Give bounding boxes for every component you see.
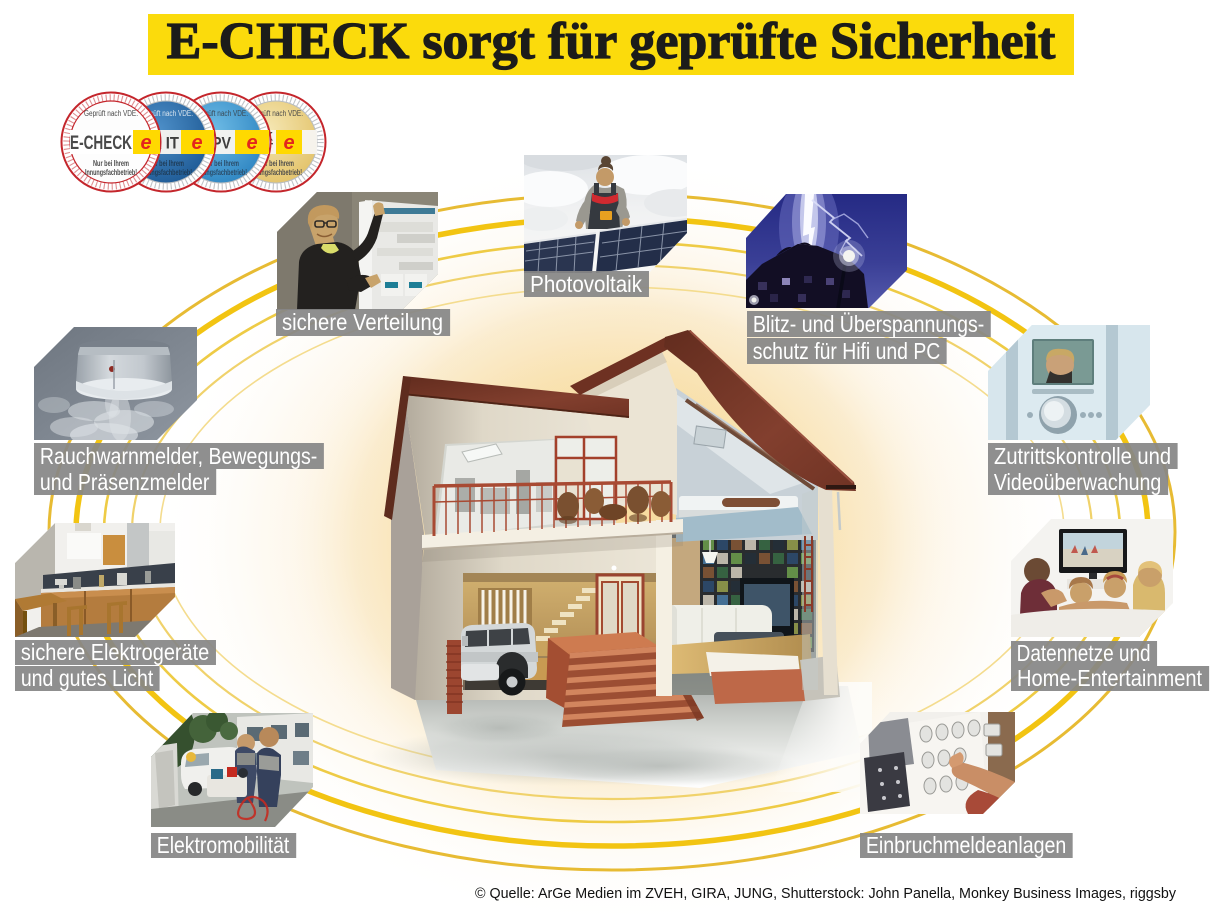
svg-text:e: e (283, 132, 294, 154)
svg-text:E-CHECK: E-CHECK (70, 133, 132, 154)
svg-text:Geprüft nach VDE.: Geprüft nach VDE. (84, 109, 138, 118)
svg-text:Innungsfachbetrieb!: Innungsfachbetrieb! (85, 168, 137, 177)
svg-text:e: e (140, 132, 151, 154)
svg-text:e: e (191, 132, 202, 154)
svg-text:Nur bei Ihrem: Nur bei Ihrem (93, 159, 129, 168)
svg-text:e: e (246, 132, 257, 154)
